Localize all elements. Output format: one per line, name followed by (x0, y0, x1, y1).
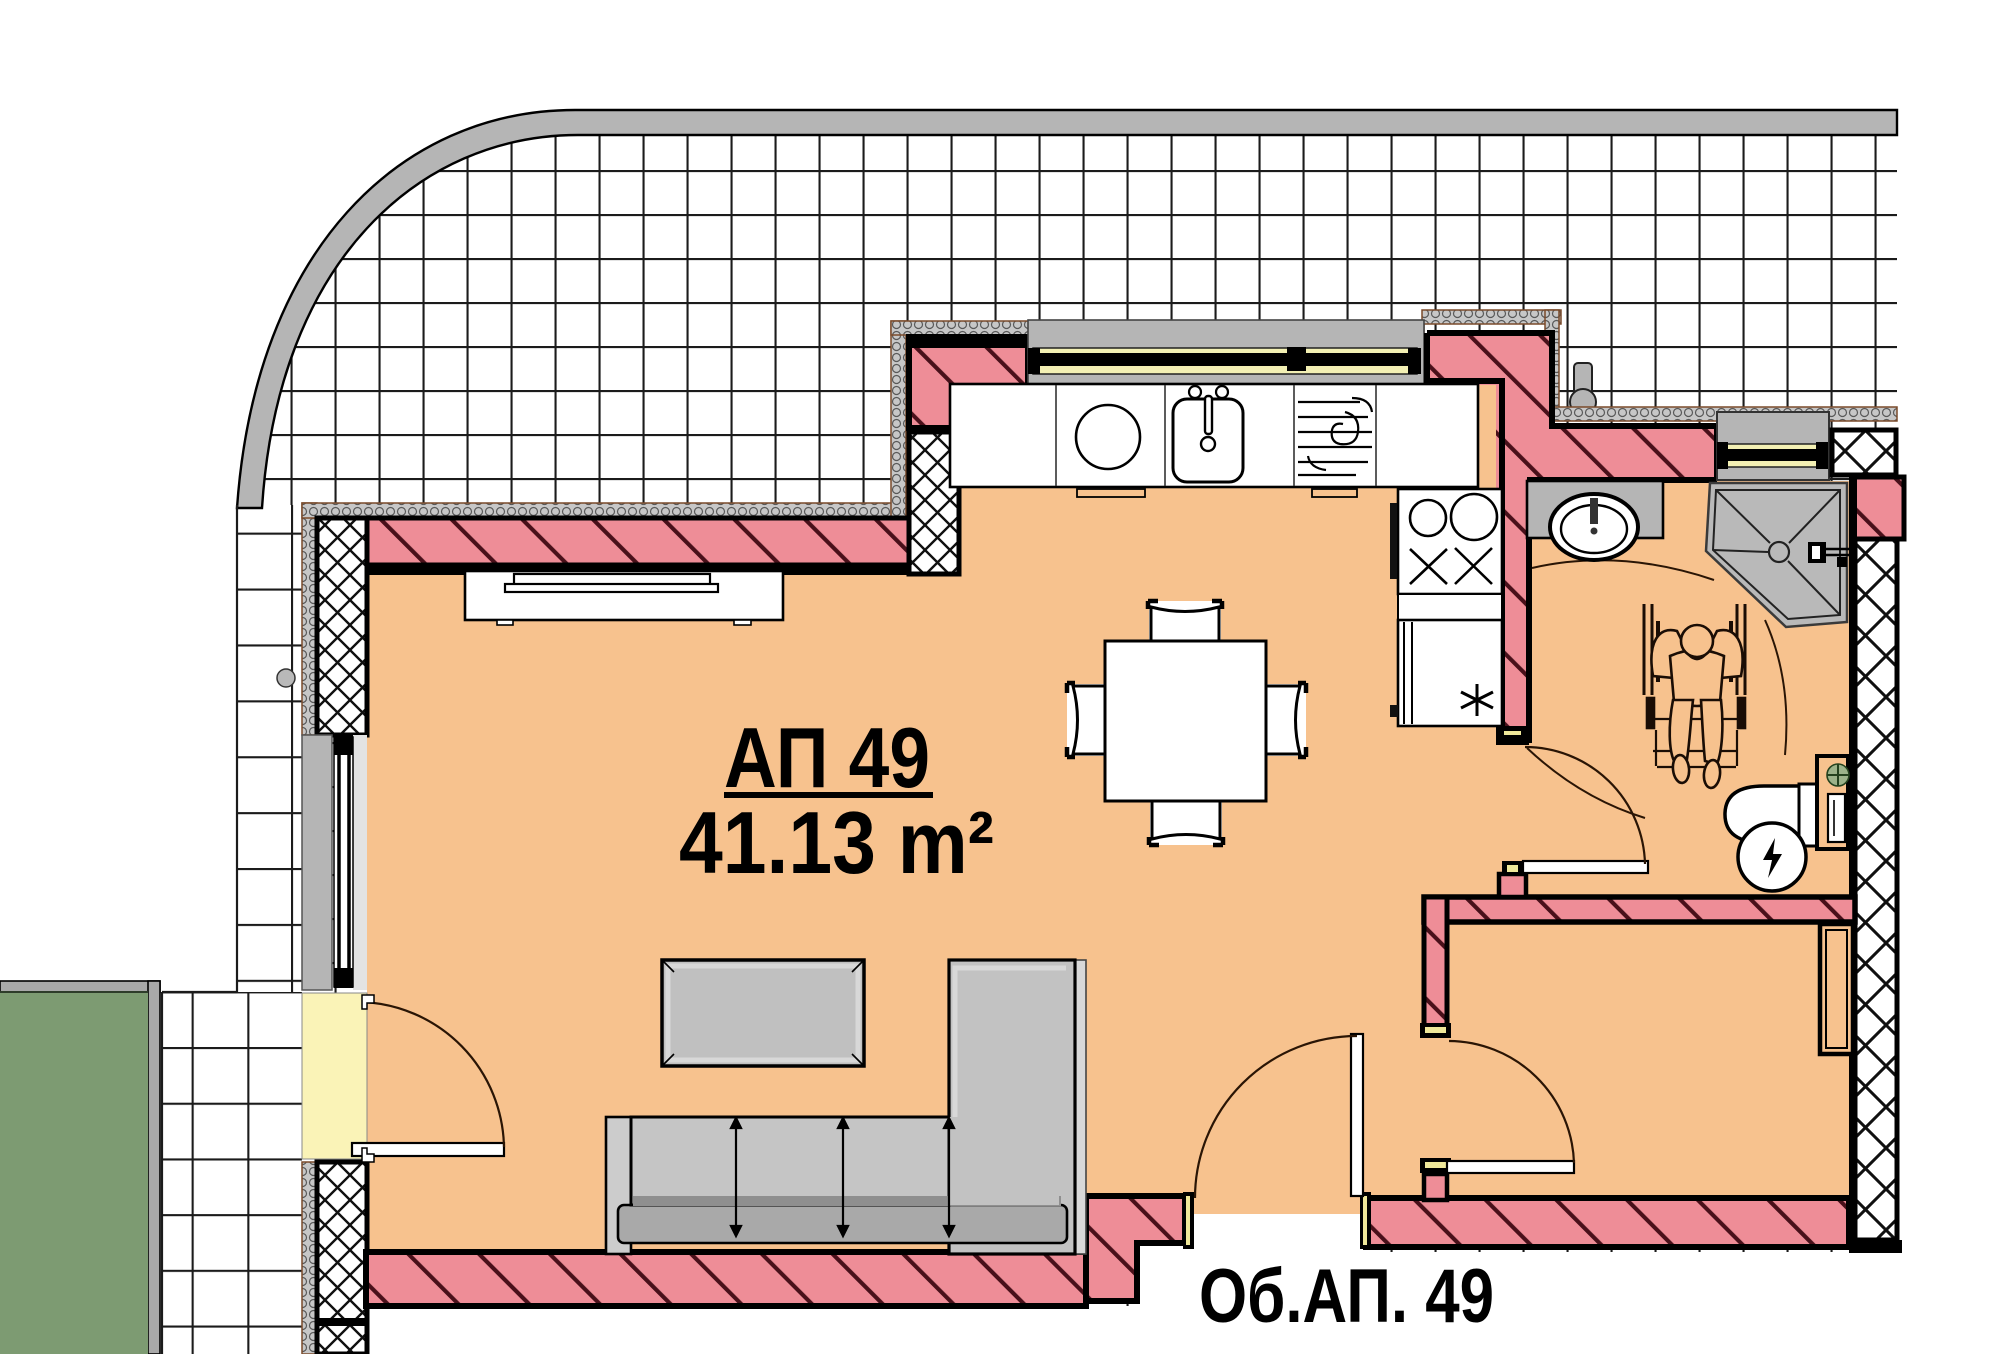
svg-text:Об.АП. 49: Об.АП. 49 (1199, 1254, 1494, 1339)
svg-text:41.13 m²: 41.13 m² (679, 793, 994, 892)
svg-text:АП 49: АП 49 (724, 711, 930, 806)
